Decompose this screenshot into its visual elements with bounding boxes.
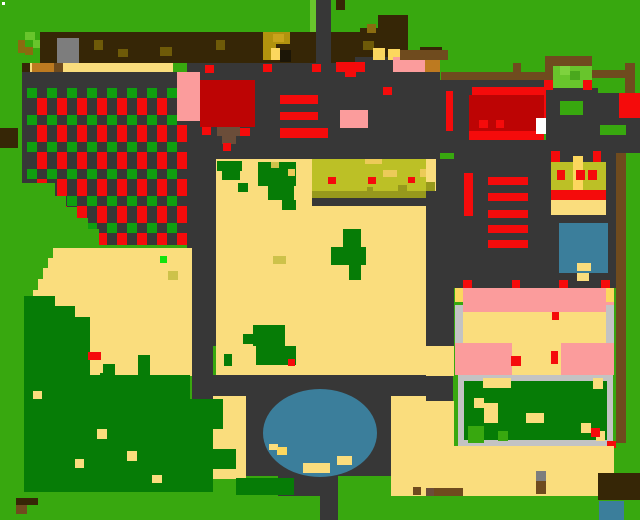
- gh-grass-2: [498, 431, 508, 441]
- mustard-dot-3: [408, 177, 415, 183]
- crop-tile-green-4-4: [107, 196, 117, 206]
- crop-tile-green-1-7: [167, 115, 177, 125]
- crop-tile-red-1-1: [57, 125, 67, 142]
- grove-6: [138, 355, 150, 376]
- gh-grass-1: [468, 426, 484, 443]
- court-tree-b3: [282, 200, 296, 210]
- arch-door-bright: [560, 66, 570, 75]
- crop-tile-red-3-4: [117, 179, 127, 196]
- tr-tree-speck-a: [367, 24, 376, 33]
- rail-b: [441, 72, 546, 80]
- road-field-right-lower: [192, 346, 213, 399]
- crop-tile-red-5-4: [117, 233, 127, 245]
- crop-tile-red-5-6: [157, 233, 167, 245]
- dot-row-1: [463, 280, 472, 288]
- totem-red-2: [576, 170, 585, 180]
- crop-tile-green-3-3: [87, 169, 97, 179]
- rail-right: [592, 70, 625, 78]
- mustard-speck-a: [365, 159, 382, 164]
- ladder-right-3: [488, 210, 528, 218]
- red-dot-road: [383, 87, 392, 95]
- lime-tile: [160, 256, 167, 263]
- crop-tile-green-2-2: [67, 142, 77, 152]
- grove-sand-6: [75, 459, 84, 468]
- tree-speck-4: [216, 40, 225, 50]
- ladder-right-col: [464, 173, 473, 216]
- crop-tile-red-3-5: [137, 179, 147, 196]
- awning-dot-1: [511, 356, 521, 366]
- court-tree-d1: [253, 325, 285, 346]
- bldg-left-dot: [223, 143, 231, 151]
- road-bottom-col: [320, 495, 338, 520]
- court-red-dot: [288, 359, 295, 366]
- court-khaki-b: [273, 256, 286, 264]
- crop-tile-green-2-3: [87, 142, 97, 152]
- crop-tile-green-2-4: [107, 142, 117, 152]
- tree-speck-2: [118, 49, 128, 57]
- bldg-right-white: [536, 118, 546, 134]
- crop-tile-red-3-6: [157, 179, 167, 196]
- crop-tile-green-4-7: [167, 196, 177, 206]
- red-tile-a: [205, 65, 214, 73]
- tree-speck-1: [94, 40, 103, 50]
- sand-left-bldg-b: [426, 401, 454, 496]
- rail-stub: [513, 63, 521, 72]
- tree-row-leaf-a: [25, 32, 35, 40]
- red-awning-tab: [345, 72, 356, 77]
- arch-top: [545, 56, 592, 66]
- grove-sand-1: [33, 391, 42, 399]
- gh-sand-3: [484, 403, 498, 423]
- court-tree-b2: [268, 186, 294, 200]
- log: [434, 488, 463, 496]
- crop-tile-red-0-0: [37, 98, 47, 115]
- bldg-right-win-1: [479, 120, 488, 128]
- awning-dot-2: [551, 351, 558, 364]
- road-under-pink: [393, 72, 440, 97]
- crop-tile-green-5-6: [147, 223, 157, 233]
- crop-tile-green-0-0: [27, 88, 37, 98]
- ladder-right-2: [488, 193, 528, 201]
- crop-tile-green-5-4: [107, 223, 117, 233]
- crop-tile-green-3-4: [107, 169, 117, 179]
- gh-sand-5: [581, 423, 591, 433]
- crop-tile-red-1-0: [37, 125, 47, 142]
- mustard-dark-b: [398, 185, 407, 193]
- crop-tile-red-4-3: [97, 206, 107, 223]
- stone-block: [57, 38, 79, 64]
- crop-tile-red-4-5: [137, 206, 147, 223]
- pocket-sand: [160, 355, 190, 364]
- red-tile-c: [312, 64, 321, 72]
- gh-red-1: [591, 428, 600, 437]
- bench-top: [16, 498, 38, 505]
- pond-sand-2: [277, 447, 287, 455]
- crop-tile-red-4-7: [177, 206, 187, 223]
- crop-tile-red-2-3: [97, 152, 107, 169]
- courtyard-sand-r: [312, 206, 426, 375]
- dirt-strip-end: [22, 63, 30, 72]
- crop-tile-green-4-2: [67, 196, 77, 206]
- grove-sand-5: [152, 475, 162, 483]
- tree-tile-top: [336, 0, 345, 10]
- field-wedge-2: [55, 196, 66, 245]
- crop-tile-red-2-5: [137, 152, 147, 169]
- inn-roof-pink: [463, 288, 614, 312]
- plaza-step-3: [38, 279, 43, 296]
- crop-tile-green-3-1: [47, 169, 57, 179]
- crop-tile-green-3-2: [67, 169, 77, 179]
- pink-mid: [340, 110, 368, 128]
- bldg-right-base: [469, 131, 544, 140]
- road-right-g: [436, 159, 454, 191]
- ladder-left-1: [280, 95, 318, 104]
- fence-brown-col: [616, 153, 626, 443]
- plaza-step-2: [43, 268, 48, 296]
- crop-tile-red-0-3: [97, 98, 107, 115]
- gh-sand-1: [483, 378, 511, 388]
- grass-tile-a: [560, 101, 583, 115]
- court-tree-d2: [243, 334, 255, 344]
- white-dot: [2, 2, 5, 5]
- crop-tile-red-1-5: [137, 125, 147, 142]
- crop-tile-red-1-2: [77, 125, 87, 142]
- sand-below-gh: [454, 446, 614, 496]
- crop-tile-red-4-4: [117, 206, 127, 223]
- grove-7: [190, 399, 213, 492]
- field-wedge-5: [88, 229, 99, 245]
- court-tree-a3: [238, 183, 248, 192]
- crop-tile-green-3-7: [167, 169, 177, 179]
- crop-tile-green-3-0: [27, 169, 37, 179]
- court-tree-c3: [349, 264, 361, 280]
- grove-sand-2: [93, 364, 103, 373]
- crop-tile-red-2-0: [37, 152, 47, 169]
- bldg-right-top: [472, 87, 538, 95]
- crop-tile-red-0-6: [157, 98, 167, 115]
- grove-2: [55, 306, 75, 492]
- crop-tile-red-1-6: [157, 125, 167, 142]
- ladder-right-5: [488, 240, 528, 248]
- crop-tile-green-3-6: [147, 169, 157, 179]
- sand-left-bldg: [426, 346, 454, 376]
- crop-tile-red-4-6: [157, 206, 167, 223]
- teal-sand-a: [577, 263, 591, 271]
- totem-base: [551, 200, 606, 215]
- gh-sand-6: [593, 378, 603, 389]
- tr-tree-eye-1: [373, 48, 385, 60]
- arch-door-mid: [570, 71, 580, 80]
- road-right-h: [426, 191, 454, 346]
- crop-tile-red-5-7: [177, 233, 187, 245]
- tree-row-gold-a: [25, 47, 33, 55]
- bldg-right-strip-l: [446, 91, 453, 131]
- totem-red-3: [588, 170, 597, 180]
- red-tile-b: [263, 64, 272, 72]
- tr-tree-blob-c: [355, 41, 363, 57]
- bldg-left-corner-l: [202, 127, 211, 135]
- grove-sand-3: [97, 429, 107, 439]
- crop-tile-green-4-5: [127, 196, 137, 206]
- crop-tile-green-0-2: [67, 88, 77, 98]
- mustard-speck-b: [383, 170, 397, 177]
- crop-tile-red-0-2: [77, 98, 87, 115]
- crop-tile-red-2-6: [157, 152, 167, 169]
- ladder-left-2: [280, 112, 318, 120]
- crop-tile-red-1-3: [97, 125, 107, 142]
- grass-tile-b: [600, 125, 626, 135]
- red-awning: [336, 62, 365, 72]
- crop-tile-green-5-7: [167, 223, 177, 233]
- crop-tile-green-4-6: [147, 196, 157, 206]
- inn-roof-corner-l: [455, 288, 463, 302]
- crop-tile-red-3-3: [97, 179, 107, 196]
- crop-tile-red-3-2: [77, 179, 87, 196]
- teal-sand-b: [577, 273, 589, 281]
- crop-tile-green-0-4: [107, 88, 117, 98]
- crop-tile-green-1-3: [87, 115, 97, 125]
- court-tree-d4: [224, 354, 232, 366]
- mustard-dot-2: [368, 177, 376, 184]
- crop-tile-red-2-7: [177, 152, 187, 169]
- tree-column-light: [310, 0, 316, 32]
- rail-a: [400, 50, 448, 60]
- crop-tile-green-1-6: [147, 115, 157, 125]
- inn-gray-r: [606, 305, 614, 343]
- crop-tile-green-1-2: [67, 115, 77, 125]
- crop-tile-green-1-5: [127, 115, 137, 125]
- crop-tile-red-2-4: [117, 152, 127, 169]
- dot-row-4: [601, 280, 610, 288]
- well-base: [536, 481, 546, 494]
- crop-tile-red-0-5: [137, 98, 147, 115]
- crop-tile-green-2-1: [47, 142, 57, 152]
- crop-tile-green-0-6: [147, 88, 157, 98]
- gh-sand-4: [526, 413, 544, 423]
- bldg-left: [200, 80, 255, 127]
- post-right: [625, 63, 635, 93]
- tree-speck-3: [160, 47, 172, 56]
- left-edge-block: [0, 128, 18, 148]
- log-b: [413, 487, 421, 495]
- road-upper-left: [22, 72, 195, 87]
- pond-sand-3: [303, 463, 330, 473]
- inn-gray-l: [455, 305, 463, 343]
- shore-tree-c: [236, 478, 294, 495]
- gold-tree-window: [271, 48, 280, 60]
- field-wedge-3: [66, 207, 77, 245]
- dot-row-2: [512, 280, 520, 288]
- gh-sand-2: [474, 398, 484, 408]
- crop-tile-green-1-1: [47, 115, 57, 125]
- khaki-tile: [168, 271, 178, 280]
- dot-row-3: [559, 280, 568, 288]
- crop-tile-green-1-4: [107, 115, 117, 125]
- mustard-dark-a: [367, 187, 373, 193]
- awning-left: [455, 343, 512, 375]
- crop-tile-green-0-5: [127, 88, 137, 98]
- crop-tile-green-4-3: [87, 196, 97, 206]
- red-block-tr: [619, 93, 640, 118]
- crop-tile-red-1-7: [177, 125, 187, 142]
- court-khaki: [271, 162, 279, 168]
- awning-right: [561, 343, 614, 375]
- crop-tile-green-2-6: [147, 142, 157, 152]
- crop-tile-green-5-5: [127, 223, 137, 233]
- crop-tile-red-0-1: [57, 98, 67, 115]
- road-right-b: [440, 97, 469, 140]
- mustard-dot-1: [328, 177, 336, 184]
- inn-roof-corner-r: [606, 288, 614, 302]
- court-tree-a2: [222, 171, 240, 180]
- bldg-left-corner-r: [240, 128, 250, 136]
- gold-tree-dark: [280, 50, 291, 62]
- br-teal-water: [599, 501, 624, 520]
- crop-tile-green-2-5: [127, 142, 137, 152]
- crop-tile-red-3-7: [177, 179, 187, 196]
- totem-red-1: [557, 170, 565, 180]
- sand-right-col: [391, 396, 426, 496]
- br-brown-block: [598, 473, 640, 500]
- crop-tile-red-5-5: [137, 233, 147, 245]
- bench-leg: [16, 505, 27, 514]
- crop-tile-green-0-1: [47, 88, 57, 98]
- well-top: [536, 471, 546, 481]
- crop-tile-green-0-7: [167, 88, 177, 98]
- sliver-olive: [426, 182, 435, 191]
- ladder-right-1: [488, 177, 528, 185]
- grove-red-tile: [88, 352, 101, 360]
- dirt-strip-brown: [54, 63, 63, 72]
- road-top-column: [316, 0, 331, 63]
- crop-tile-green-3-5: [127, 169, 137, 179]
- pond-sand-4: [337, 456, 352, 465]
- totem-horn-l: [551, 151, 560, 162]
- court-tree-a1: [217, 161, 242, 171]
- mustard-road: [312, 198, 426, 206]
- door-flank-right: [583, 80, 592, 90]
- grove-sand-4: [127, 451, 137, 461]
- inn-red-dot: [552, 312, 559, 320]
- crop-tile-red-2-1: [57, 152, 67, 169]
- crop-tile-red-0-4: [117, 98, 127, 115]
- court-tree-c2: [331, 247, 366, 265]
- bldg-right-win-2: [496, 120, 504, 128]
- log-dark: [426, 488, 434, 496]
- crop-tile-green-1-0: [27, 115, 37, 125]
- road-block-br: [426, 376, 453, 401]
- ladder-left-3: [280, 128, 328, 138]
- totem-horn-r: [593, 151, 601, 162]
- crop-tile-red-1-4: [117, 125, 127, 142]
- plaza-step-1: [48, 258, 53, 296]
- field-wedge-4: [77, 218, 88, 245]
- pink-field-corner: [177, 72, 200, 121]
- field-wedge-1: [22, 183, 55, 245]
- crop-tile-red-3-1: [57, 179, 67, 196]
- road-right-e: [426, 140, 616, 153]
- totem-red-band: [551, 190, 606, 200]
- crop-tile-green-0-3: [87, 88, 97, 98]
- gold-tree-light: [273, 34, 284, 42]
- shore-tree-a: [213, 399, 223, 429]
- crop-tile-green-2-7: [167, 142, 177, 152]
- tree-row-gold-b: [18, 40, 25, 53]
- game-world-map[interactable]: [0, 0, 640, 520]
- dirt-strip-orange: [32, 63, 54, 72]
- court-speck: [288, 169, 295, 176]
- crop-tile-red-2-2: [77, 152, 87, 169]
- crop-tile-green-2-0: [27, 142, 37, 152]
- ladder-right-4: [488, 225, 528, 233]
- shore-tree-b: [213, 449, 236, 469]
